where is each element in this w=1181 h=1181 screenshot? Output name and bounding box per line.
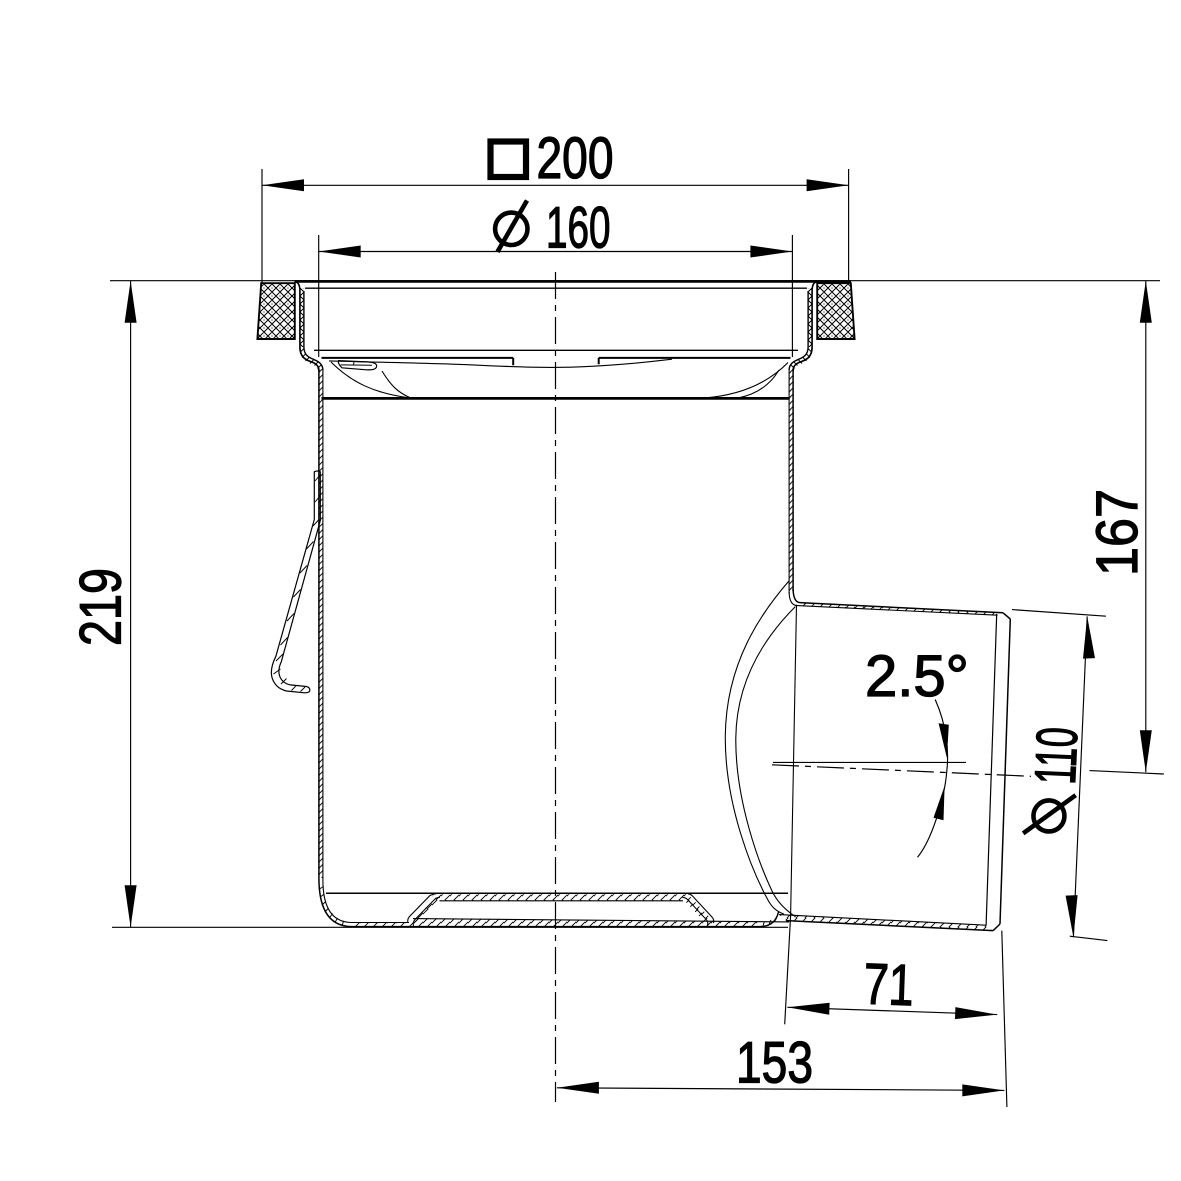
svg-text:167: 167	[1085, 489, 1150, 576]
svg-text:160: 160	[546, 196, 611, 261]
svg-text:71: 71	[863, 952, 915, 1019]
svg-text:110: 110	[1023, 726, 1090, 786]
svg-text:219: 219	[69, 568, 134, 646]
svg-text:2.5°: 2.5°	[865, 644, 969, 709]
svg-text:153: 153	[736, 1031, 813, 1096]
svg-text:200: 200	[537, 126, 614, 191]
